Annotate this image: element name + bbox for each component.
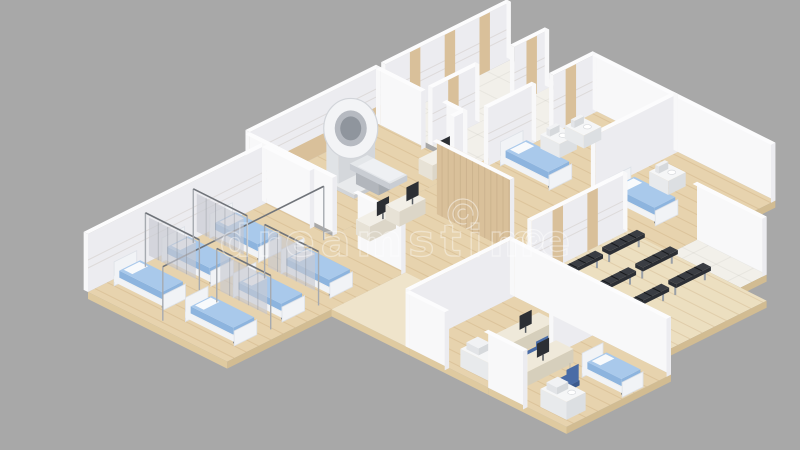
watermark-text: dreamstime [220, 216, 577, 267]
stock-photo-canvas: dreamstime [0, 0, 800, 450]
isometric-hospital-floorplan: dreamstime [0, 0, 800, 450]
